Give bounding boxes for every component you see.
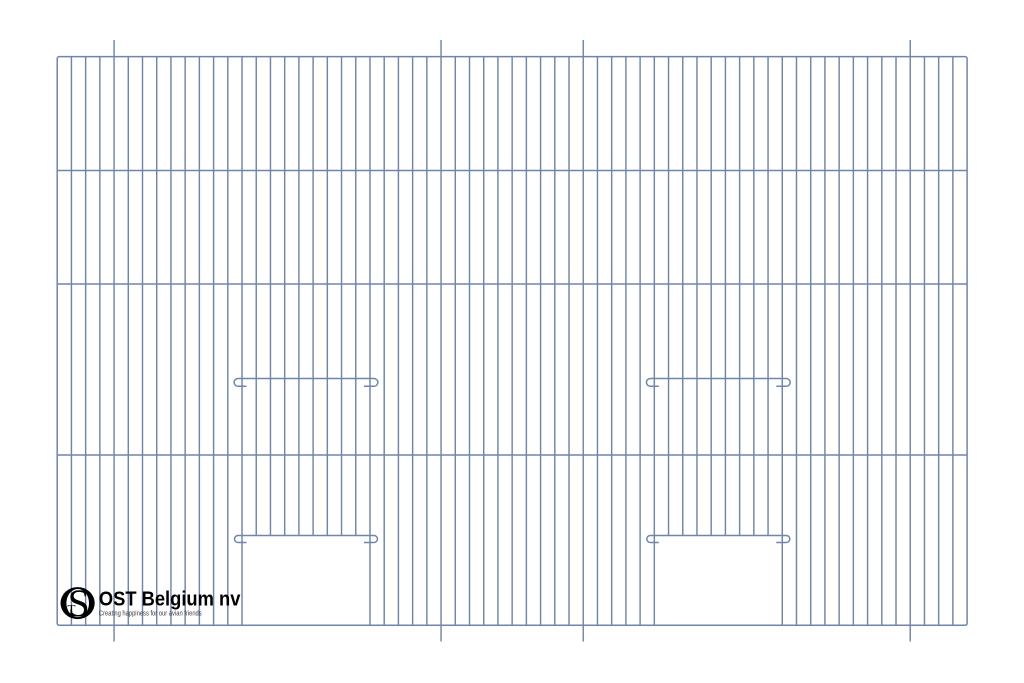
- svg-text:OST Belgium nv: OST Belgium nv: [99, 587, 241, 610]
- svg-text:Creating happiness for our avi: Creating happiness for our avian friends: [99, 611, 202, 618]
- svg-text:T: T: [68, 602, 76, 617]
